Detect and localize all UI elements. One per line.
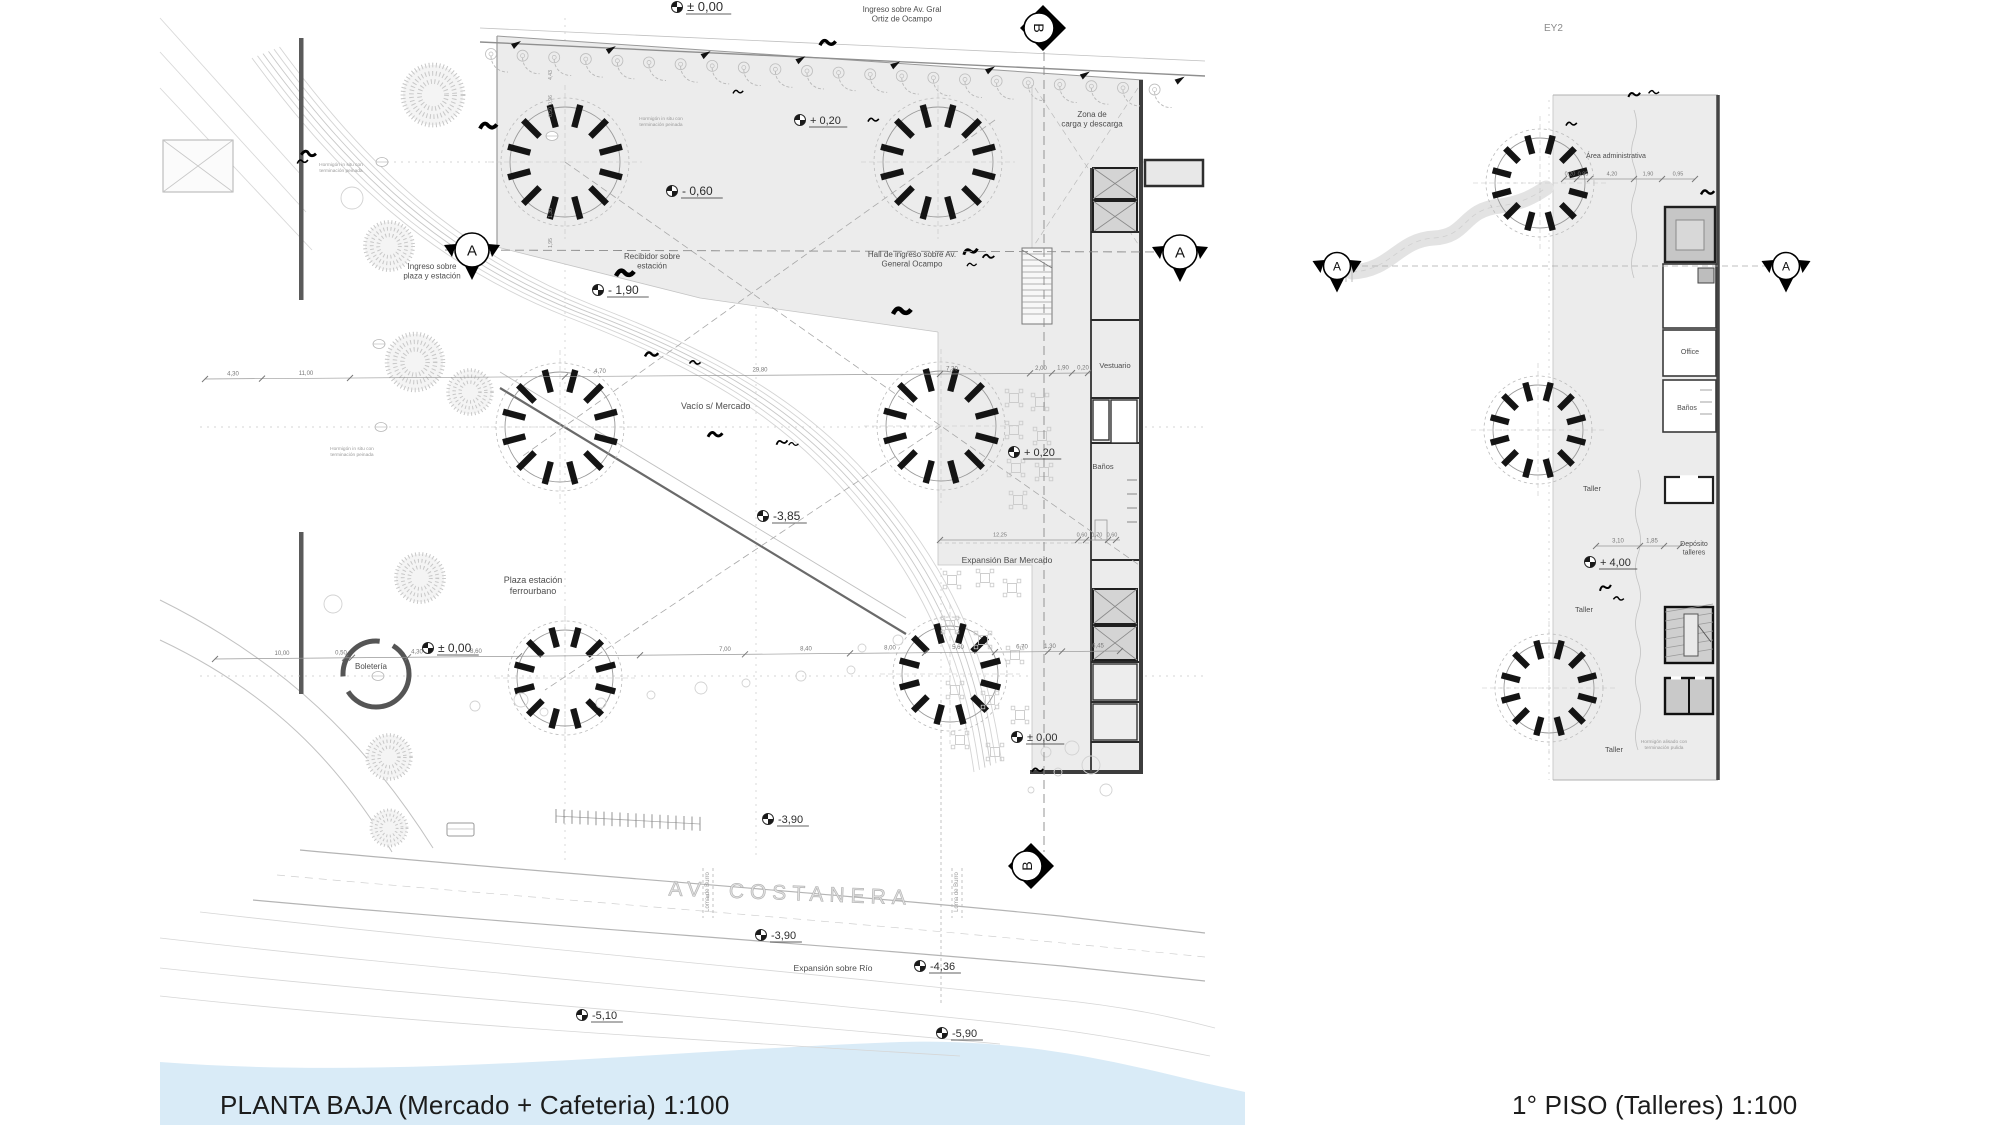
dim-vertical-left-value: 4,43 — [548, 70, 554, 80]
dim-chain-right-mid-value: 1,85 — [1646, 539, 1658, 545]
level-pb_p020_bar: + 0,20 — [1024, 447, 1055, 459]
table-icon — [1011, 706, 1029, 724]
level-pb_m385: -3,85 — [773, 509, 801, 523]
dim-chain-upper-value: 29,80 — [752, 368, 768, 374]
label-taller-2: Taller — [1575, 605, 1593, 614]
dim-chain-lower-value: 10,00 — [274, 651, 290, 657]
level-pb_m510: -5,10 — [592, 1010, 617, 1022]
drawing-sheet: 4,3011,004,7029,807,302,001,900,2010,000… — [0, 0, 2000, 1125]
label-vacio: Vacío s/ Mercado — [681, 401, 750, 411]
level-marker-icon — [667, 186, 678, 197]
level-pb_m190: - 1,90 — [608, 283, 639, 297]
level-marker-icon — [756, 930, 767, 941]
dim-chain-upper-value: 1,90 — [1057, 366, 1069, 372]
level-marker-icon — [1012, 732, 1023, 743]
section-marker-a-left-letter: A — [467, 242, 477, 259]
level-marker-icon — [795, 115, 806, 126]
dim-chain-bar-value: 12,25 — [993, 533, 1007, 539]
dim-chain-lower-value: 1,30 — [1044, 644, 1056, 650]
dim-chain-upper-value: 4,70 — [594, 369, 606, 375]
section-marker-a-right-letter: A — [1175, 244, 1185, 261]
level-pb_000_top: ± 0,00 — [687, 0, 723, 14]
left-plan-title: PLANTA BAJA (Mercado + Cafeteria) 1:100 — [220, 1090, 730, 1121]
tree-icon — [365, 222, 413, 270]
label-expansion-bar: Expansión Bar Mercado — [962, 555, 1053, 565]
label-loma-burro-1: Loma de Burro — [705, 872, 711, 912]
level-pb_m390_b: -3,90 — [771, 930, 796, 942]
level-marker-icon — [672, 2, 683, 13]
table-icon — [951, 731, 969, 749]
dim-chain-bar-value: 0,60 — [1107, 533, 1118, 539]
dim-chain-lower-value: 5,60 — [952, 645, 964, 651]
level-pb_m060: - 0,60 — [682, 184, 713, 198]
section-marker-b-top-letter: B — [1030, 23, 1046, 33]
level-marker-icon — [915, 961, 926, 972]
dim-vertical-left-value: 1,95 — [548, 238, 554, 248]
level-pb_m436: -4,36 — [930, 961, 955, 973]
table-icon — [976, 569, 994, 587]
dim-chain-lower-value: 8,40 — [800, 646, 812, 652]
dim-chain-lower-value: 6,45 — [1092, 644, 1104, 650]
dim-chain-lower-value: 8,00 — [884, 646, 896, 652]
section-marker-b-bottom: B — [1008, 843, 1054, 889]
column-cluster — [483, 350, 637, 504]
label-plaza-estacion: Plaza estaciónferrourbano — [504, 575, 563, 596]
dim-vertical-left-value: 0,96 — [548, 95, 554, 105]
level-pb_m390_a: -3,90 — [778, 814, 803, 826]
level-pb_000_br: ± 0,00 — [1027, 732, 1058, 744]
level-marker-icon — [937, 1028, 948, 1039]
dim-vertical-left-value: 0,50 — [548, 107, 554, 117]
plans-drawing: 4,3011,004,7029,807,302,001,900,2010,000… — [0, 0, 2000, 1125]
label-note-hormigon-1b: Hormigón in situ conterminación peinada — [330, 446, 374, 458]
label-key-label: EY2 — [1544, 23, 1563, 34]
tree-icon — [396, 554, 444, 602]
column-cluster — [880, 604, 1020, 744]
table-icon — [1003, 579, 1021, 597]
label-area-admin: Área administrativa — [1586, 151, 1646, 160]
dim-chain-lower-value: 4,30 — [411, 650, 423, 656]
label-expansion-rio: Expansión sobre Río — [794, 963, 873, 973]
first-floor-plan — [1346, 95, 1718, 780]
tree-icon — [403, 65, 463, 125]
section-marker-b-top: B — [1020, 5, 1066, 51]
level-marker-icon — [758, 511, 769, 522]
dim-chain-right-mid-value: 3,10 — [1612, 539, 1624, 545]
right-plan-title: 1° PISO (Talleres) 1:100 — [1512, 1090, 1797, 1121]
car-icon — [447, 823, 474, 836]
dim-chain-right-top-value: 0,95 — [1578, 172, 1589, 178]
level-marker-icon — [423, 643, 434, 654]
label-banos-p1: Baños — [1677, 405, 1697, 412]
dim-chain-upper-value: 0,20 — [1077, 366, 1089, 372]
level-pb_p020_top: + 0,20 — [810, 115, 841, 127]
label-taller-3: Taller — [1605, 745, 1623, 754]
label-deposito: Depósitotalleres — [1680, 541, 1708, 556]
dim-chain-upper-value: 11,00 — [299, 371, 314, 377]
tree-icon — [448, 370, 492, 414]
dim-chain-lower-value: 7,00 — [719, 647, 731, 653]
label-office: Office — [1681, 349, 1699, 356]
dim-chain-lower-value: 8,60 — [470, 649, 482, 655]
level-marker-icon — [1009, 447, 1020, 458]
dim-chain-lower-value: 6,70 — [1016, 644, 1028, 650]
level-marker-icon — [577, 1010, 588, 1021]
label-note-hormigon-1a: Hormigón in situ conterminación peinada — [319, 162, 363, 174]
section-marker-a-p1-right-letter: A — [1782, 259, 1790, 273]
label-loma-burro-2: Loma de Burro — [954, 872, 960, 912]
dim-chain-upper-value: 2,00 — [1035, 366, 1047, 372]
tree-icon — [371, 810, 407, 846]
dim-chain-lower-value: 0,50 — [335, 650, 347, 656]
dim-chain-bar-value: 0,60 — [1077, 533, 1088, 539]
tree-icon — [387, 334, 443, 390]
label-boleteria: Boletería — [355, 662, 388, 671]
level-marker-icon — [1585, 557, 1596, 568]
label-vestuario: Vestuario — [1099, 361, 1130, 370]
level-p1_p400: + 4,00 — [1600, 557, 1631, 569]
level-marker-icon — [593, 285, 604, 296]
dim-chain-right-top-value: 0,20 — [1565, 172, 1576, 178]
label-note-hormigon-2: Hormigón alisado conterminación pulida — [1641, 739, 1688, 751]
dim-vertical-left-value: 1,30 — [548, 208, 554, 218]
tree-icon — [367, 735, 411, 779]
dim-chain-upper-value: 4,30 — [227, 371, 239, 377]
label-ingreso-plaza: Ingreso sobreplaza y estación — [403, 262, 460, 281]
label-banos-pb: Baños — [1092, 462, 1114, 471]
section-marker-a-p1-left-letter: A — [1333, 259, 1341, 273]
level-pb_000_plaza: ± 0,00 — [438, 641, 472, 655]
section-marker-b-bottom-letter: B — [1020, 861, 1036, 871]
dim-chain-right-top-value: 4,20 — [1607, 172, 1618, 178]
dim-chain-bar-value: 1,70 — [1092, 533, 1103, 539]
level-marker-icon — [763, 814, 774, 825]
dim-chain-right-top-value: 1,90 — [1643, 172, 1654, 178]
label-note-hormigon-1c: Hormigón in situ conterminación peinada — [639, 116, 683, 128]
label-taller-1: Taller — [1583, 484, 1601, 493]
label-ingreso-av: Ingreso sobre Av. GralOrtiz de Ocampo — [863, 5, 942, 24]
table-icon — [943, 571, 961, 589]
dim-chain-right-top-value: 0,95 — [1673, 172, 1684, 178]
section-marker-a-right: A — [1152, 235, 1208, 282]
section-marker-a-p1-right: A — [1762, 253, 1811, 293]
level-pb_m590: -5,90 — [952, 1028, 977, 1040]
dim-chain-upper-value: 7,30 — [946, 366, 958, 372]
